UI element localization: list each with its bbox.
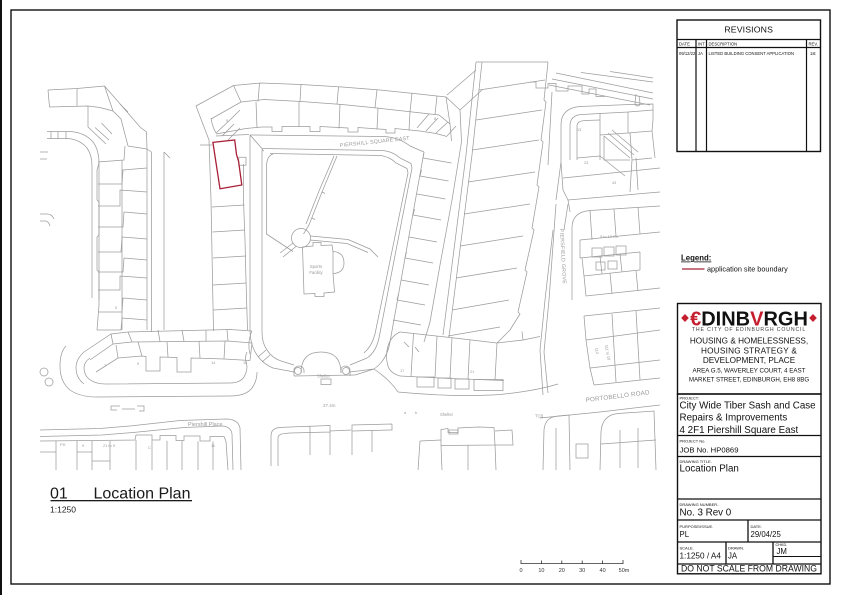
svg-text:0: 0 xyxy=(519,568,522,574)
svg-text:Legend:: Legend: xyxy=(681,254,711,263)
svg-text:1:1250 / A4: 1:1250 / A4 xyxy=(680,552,722,561)
svg-text:10: 10 xyxy=(538,568,544,574)
svg-text:09/12/22: 09/12/22 xyxy=(679,51,696,56)
svg-text:Facility: Facility xyxy=(309,270,323,275)
svg-text:REVISIONS: REVISIONS xyxy=(724,25,773,35)
svg-text:HOUSING & HOMELESSNESS,: HOUSING & HOMELESSNESS, xyxy=(690,337,808,346)
svg-text:DRAWN.: DRAWN. xyxy=(728,546,744,551)
svg-text:Shelter: Shelter xyxy=(317,374,331,379)
svg-text:21 to 9: 21 to 9 xyxy=(103,443,115,448)
svg-text:JA: JA xyxy=(728,552,738,561)
svg-text:9: 9 xyxy=(226,118,228,123)
svg-text:Location Plan: Location Plan xyxy=(680,464,739,475)
svg-text:INT: INT xyxy=(698,41,705,46)
svg-text:DATE.: DATE. xyxy=(751,524,762,529)
svg-text:11: 11 xyxy=(211,443,215,448)
svg-text:30: 30 xyxy=(579,568,585,574)
svg-text:SCALE.: SCALE. xyxy=(680,546,694,551)
svg-text:20: 20 xyxy=(559,568,565,574)
svg-text:9: 9 xyxy=(137,361,139,366)
svg-text:8: 8 xyxy=(434,116,436,121)
svg-text:9 to 13 Ch: 9 to 13 Ch xyxy=(600,234,618,239)
svg-text:13: 13 xyxy=(577,127,581,132)
svg-text:9: 9 xyxy=(82,443,84,448)
svg-text:17: 17 xyxy=(400,368,404,373)
svg-text:DRAWING NUMBER..: DRAWING NUMBER.. xyxy=(680,502,720,507)
svg-text:29/04/25: 29/04/25 xyxy=(751,530,782,539)
svg-text:Repairs & Improvements: Repairs & Improvements xyxy=(680,412,788,423)
svg-text:THE CITY OF EDINBURGH COUNCIL: THE CITY OF EDINBURGH COUNCIL xyxy=(692,327,806,333)
svg-text:5: 5 xyxy=(115,305,117,310)
svg-text:DEVELOPMENT, PLACE: DEVELOPMENT, PLACE xyxy=(703,356,796,365)
svg-text:DESCRIPTION: DESCRIPTION xyxy=(709,41,738,46)
svg-text:27.4m: 27.4m xyxy=(323,403,336,408)
svg-text:PURPOSE/ISSUE.: PURPOSE/ISSUE. xyxy=(680,524,714,529)
svg-text:40: 40 xyxy=(600,568,606,574)
svg-text:21: 21 xyxy=(470,369,474,374)
svg-text:AREA G.5, WAVERLEY COURT, 4 EA: AREA G.5, WAVERLEY COURT, 4 EAST xyxy=(693,367,806,374)
svg-text:Shelter: Shelter xyxy=(440,412,454,417)
svg-text:LISTED BUILDING CONSENT APPLIC: LISTED BUILDING CONSENT APPLICATION xyxy=(709,51,794,56)
svg-text:TCB: TCB xyxy=(535,414,543,419)
svg-text:MARKET STREET, EDINBURGH, EH8: MARKET STREET, EDINBURGH, EH8 8BG xyxy=(689,376,810,383)
svg-text:23: 23 xyxy=(584,160,588,165)
svg-text:PH: PH xyxy=(60,442,66,447)
svg-text:1:1250: 1:1250 xyxy=(50,504,76,514)
svg-text:15: 15 xyxy=(243,360,247,365)
svg-text:JA: JA xyxy=(698,51,703,56)
svg-text:DO NOT SCALE FROM DRAWING: DO NOT SCALE FROM DRAWING xyxy=(681,563,817,573)
svg-text:01: 01 xyxy=(50,485,68,502)
svg-text:Sports: Sports xyxy=(310,264,322,269)
svg-text:JOB No. HP0869: JOB No. HP0869 xyxy=(680,445,739,454)
svg-text:JM: JM xyxy=(777,547,787,556)
svg-text:4 2F1 Piershill Square East: 4 2F1 Piershill Square East xyxy=(680,425,799,436)
svg-text:7: 7 xyxy=(104,363,106,368)
svg-text:DATE: DATE xyxy=(679,41,690,46)
svg-text:113: 113 xyxy=(594,347,600,354)
svg-text:1st: 1st xyxy=(810,51,816,56)
svg-text:Piershill Place: Piershill Place xyxy=(188,422,223,428)
svg-text:Location Plan: Location Plan xyxy=(94,485,191,502)
svg-text:b: b xyxy=(415,410,417,415)
svg-text:PROJECT No.: PROJECT No. xyxy=(680,439,706,444)
svg-text:C: C xyxy=(148,445,151,450)
svg-text:PL: PL xyxy=(680,530,690,539)
svg-text:50m: 50m xyxy=(619,568,630,574)
svg-text:application site boundary: application site boundary xyxy=(707,264,788,273)
svg-text:HOUSING STRATEGY &: HOUSING STRATEGY & xyxy=(701,347,797,356)
svg-text:43: 43 xyxy=(612,180,616,185)
svg-text:No. 3 Rev 0: No. 3 Rev 0 xyxy=(680,508,732,519)
svg-text:City Wide Tiber Sash and Case: City Wide Tiber Sash and Case xyxy=(680,400,817,411)
svg-text:REV.: REV. xyxy=(809,41,818,46)
